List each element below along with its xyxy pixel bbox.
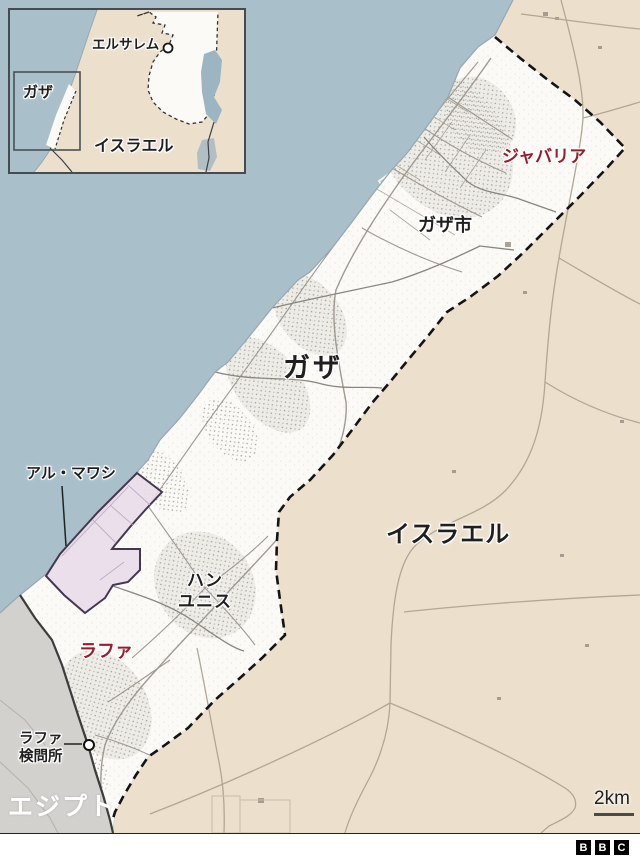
bbc-logo: B B C <box>576 840 629 855</box>
bbc-logo-block-1: B <box>576 840 591 855</box>
label-rafah-crossing: ラファ 検問所 <box>19 730 63 766</box>
label-israel: イスラエル <box>386 520 510 550</box>
label-khan-younis: ハン ユニス <box>168 570 242 613</box>
rafah-crossing-marker <box>84 740 94 750</box>
scale-bar <box>594 813 634 816</box>
scale-indicator: 2km <box>594 788 636 816</box>
bottom-bar: B B C <box>0 833 640 862</box>
label-gaza-city: ガザ市 <box>418 214 472 237</box>
label-rafah: ラファ <box>79 640 133 663</box>
label-egypt: エジプト <box>8 792 116 823</box>
jerusalem-marker <box>164 44 173 53</box>
bbc-gaza-map: ジャバリア ガザ市 ガザ イスラエル アル・マワシ ハン ユニス ラファ ラファ… <box>0 0 640 862</box>
bbc-logo-block-3: C <box>614 840 629 855</box>
label-al-mawasi: アル・マワシ <box>26 465 116 484</box>
label-inset-jerusalem: エルサレム <box>92 37 159 54</box>
label-jabalia: ジャバリア <box>502 146 586 167</box>
label-inset-israel: イスラエル <box>94 137 174 157</box>
label-inset-gaza: ガザ <box>23 84 53 103</box>
bbc-logo-block-2: B <box>595 840 610 855</box>
scale-label: 2km <box>594 788 636 810</box>
label-gaza-strip: ガザ <box>283 352 343 386</box>
